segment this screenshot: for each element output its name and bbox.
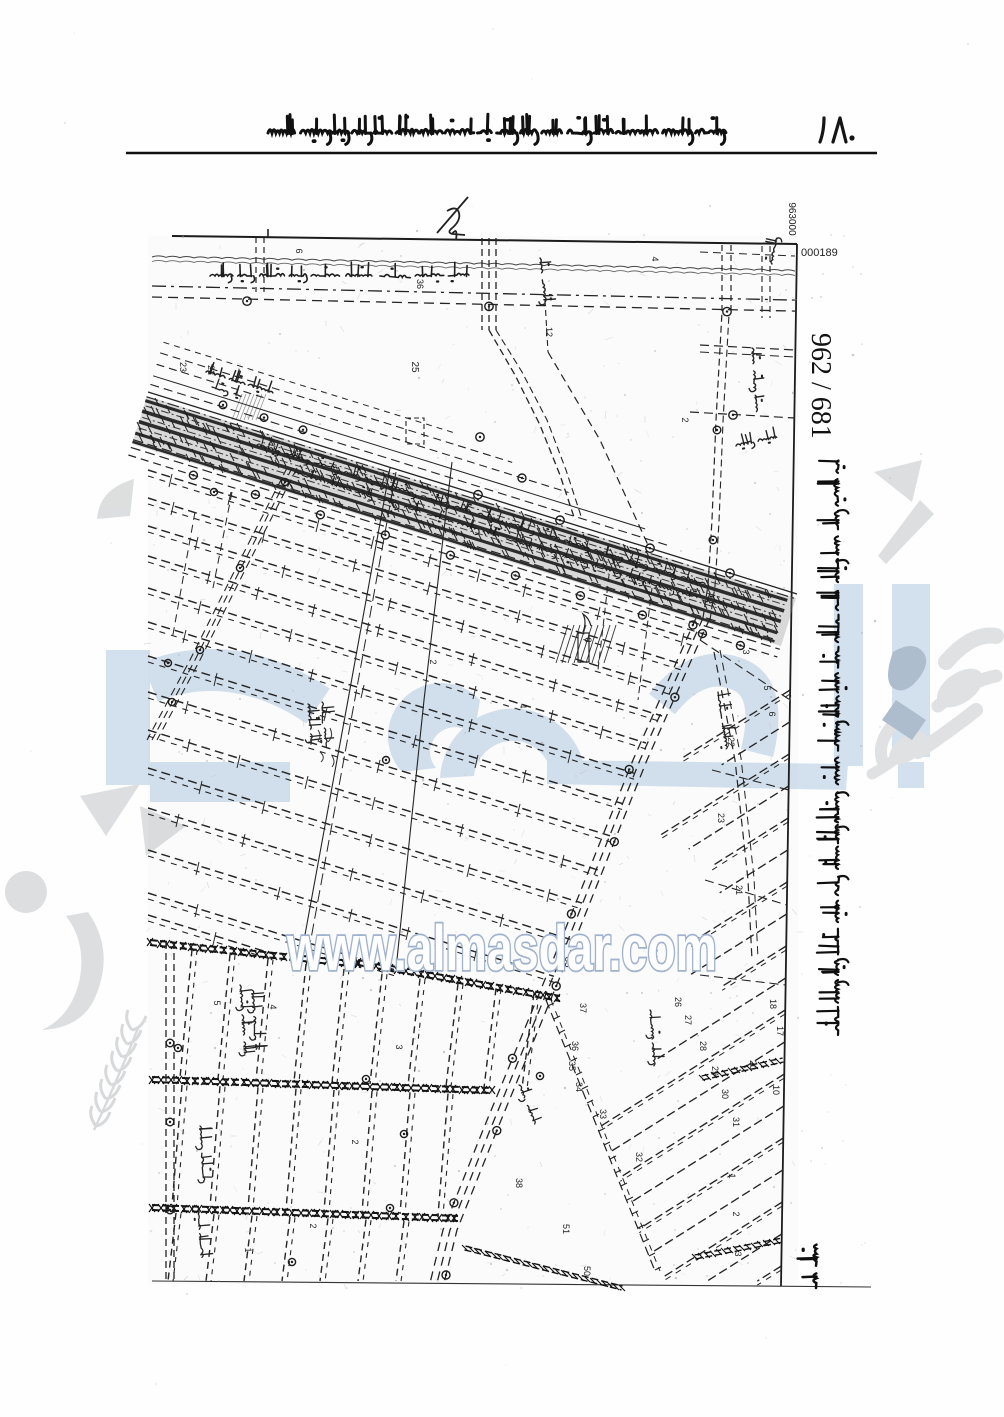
svg-text:962 / 681: 962 / 681 [805, 333, 836, 439]
svg-text:www.almasdar.com: www.almasdar.com [286, 912, 717, 984]
svg-text:963000: 963000 [786, 202, 797, 236]
svg-text:000189: 000189 [801, 247, 838, 259]
